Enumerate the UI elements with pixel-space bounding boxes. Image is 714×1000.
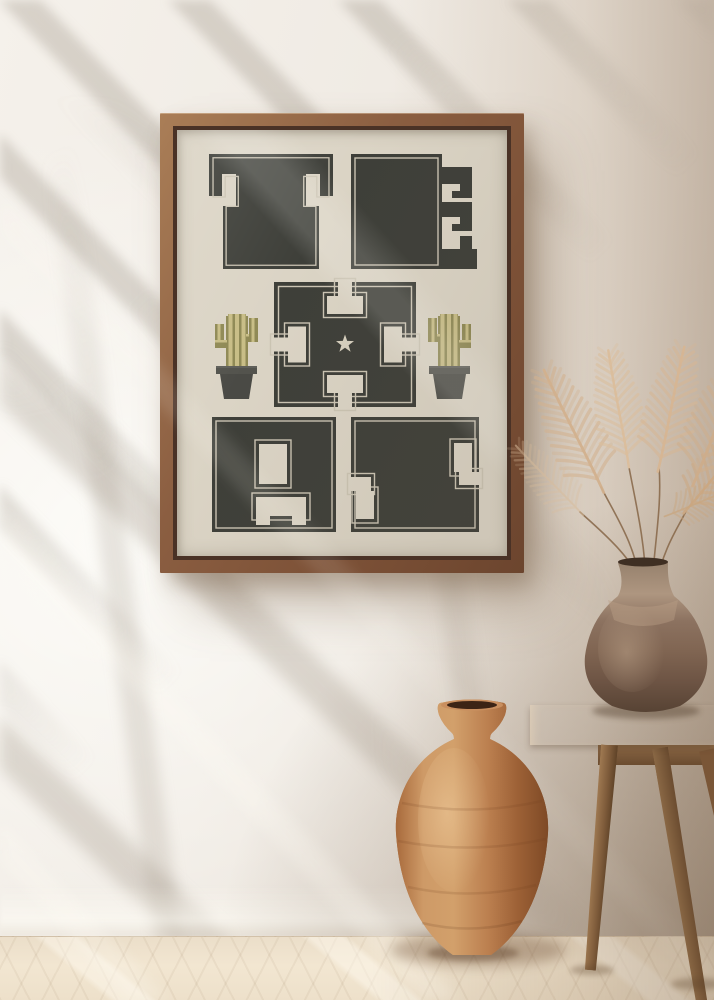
table-vase-highlight [598,604,666,692]
objects-layer [0,0,714,1000]
pampas-grass [499,337,714,585]
floor-vase-highlight [418,748,490,892]
leg-shadow [570,965,614,975]
pampas-plume [658,468,714,532]
pampas-plume [499,429,597,529]
ceramic-table-vase [585,558,708,720]
terracotta-floor-vase [390,700,566,968]
interior-scene [0,0,714,1000]
table-vase-opening [618,558,668,567]
leg-shadow [671,978,714,990]
floor-vase-opening [447,701,497,709]
pampas-plume [584,342,653,471]
